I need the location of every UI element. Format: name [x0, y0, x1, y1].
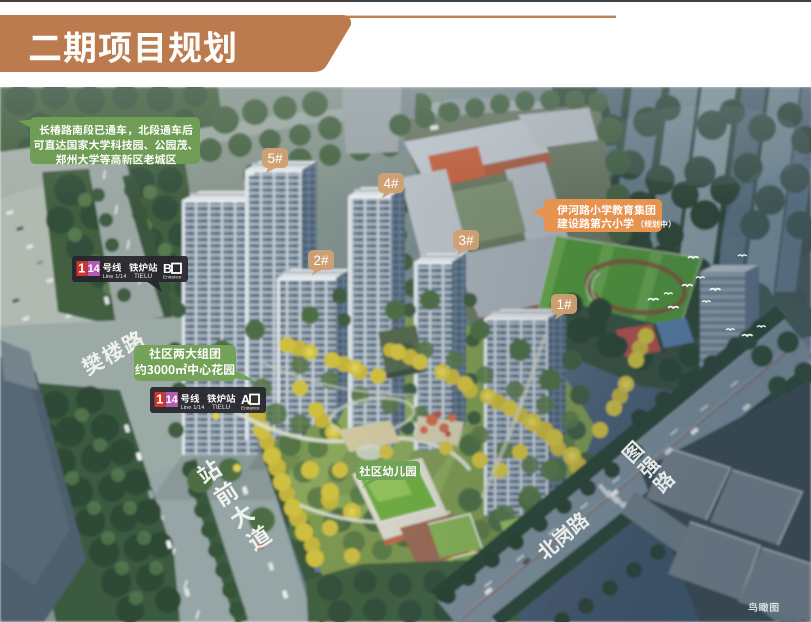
svg-text:Entrance: Entrance [163, 274, 182, 279]
svg-text:4#: 4# [383, 176, 399, 191]
svg-text:1#: 1# [556, 297, 572, 312]
svg-text:14: 14 [88, 263, 101, 275]
svg-text:TIELU: TIELU [134, 273, 152, 280]
svg-text:Entrance: Entrance [241, 405, 260, 410]
svg-text:1: 1 [78, 261, 85, 276]
svg-text:5#: 5# [267, 151, 283, 166]
svg-text:Line 1/14: Line 1/14 [103, 274, 128, 280]
svg-text:TIELU: TIELU [212, 404, 230, 411]
svg-text:1: 1 [156, 392, 163, 407]
svg-text:3#: 3# [458, 233, 474, 248]
svg-text:Line 1/14: Line 1/14 [181, 405, 206, 411]
svg-text:14: 14 [166, 394, 179, 406]
svg-text:2#: 2# [313, 253, 329, 268]
